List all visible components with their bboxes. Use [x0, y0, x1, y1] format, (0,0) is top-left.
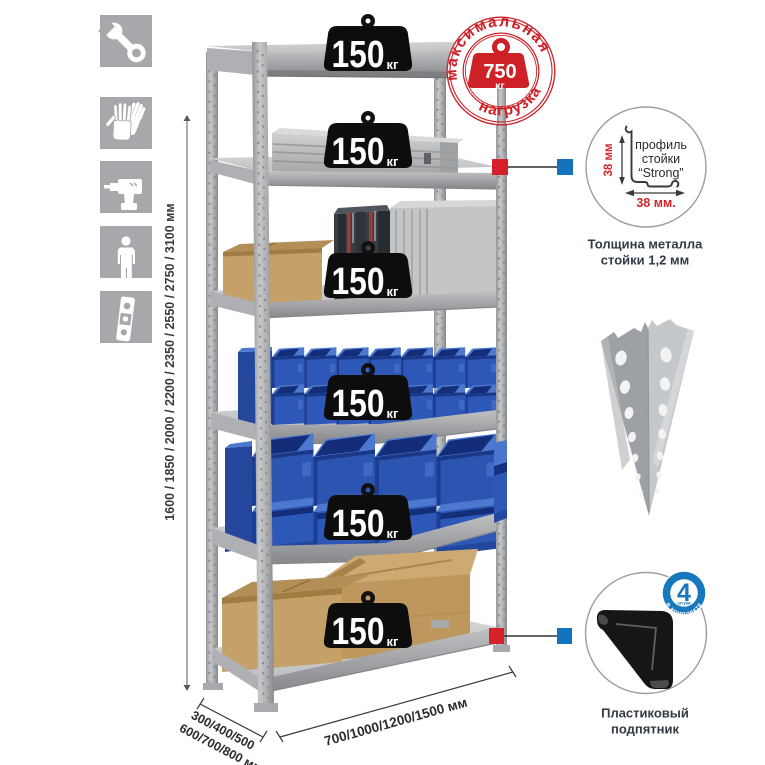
svg-text:стойки: стойки [642, 152, 680, 166]
svg-text:38 мм.: 38 мм. [636, 196, 675, 210]
svg-text:38 мм: 38 мм [603, 143, 615, 176]
svg-text:1600 / 1850 / 2000 / 2200 / 23: 1600 / 1850 / 2000 / 2200 / 2350 / 2550 … [163, 203, 177, 520]
svg-text:кг: кг [387, 526, 400, 541]
svg-text:150: 150 [332, 503, 385, 545]
svg-text:кг: кг [387, 406, 400, 421]
svg-text:150: 150 [332, 131, 385, 173]
svg-text:“Strong”: “Strong” [638, 166, 683, 180]
svg-text:профиль: профиль [635, 138, 687, 152]
svg-text:кг: кг [495, 80, 505, 92]
svg-text:подпятник: подпятник [611, 722, 680, 737]
svg-text:150: 150 [332, 261, 385, 303]
svg-text:Пластиковый: Пластиковый [601, 706, 689, 721]
svg-text:стойки 1,2 мм: стойки 1,2 мм [601, 253, 689, 268]
svg-text:150: 150 [332, 34, 385, 76]
svg-text:кг: кг [387, 154, 400, 169]
svg-text:штуки: штуки [677, 600, 691, 605]
svg-text:кг: кг [387, 284, 400, 299]
svg-text:150: 150 [332, 383, 385, 425]
svg-text:Толщина металла: Толщина металла [588, 237, 703, 252]
svg-text:кг: кг [387, 57, 400, 72]
svg-text:150: 150 [332, 611, 385, 653]
svg-text:кг: кг [387, 634, 400, 649]
